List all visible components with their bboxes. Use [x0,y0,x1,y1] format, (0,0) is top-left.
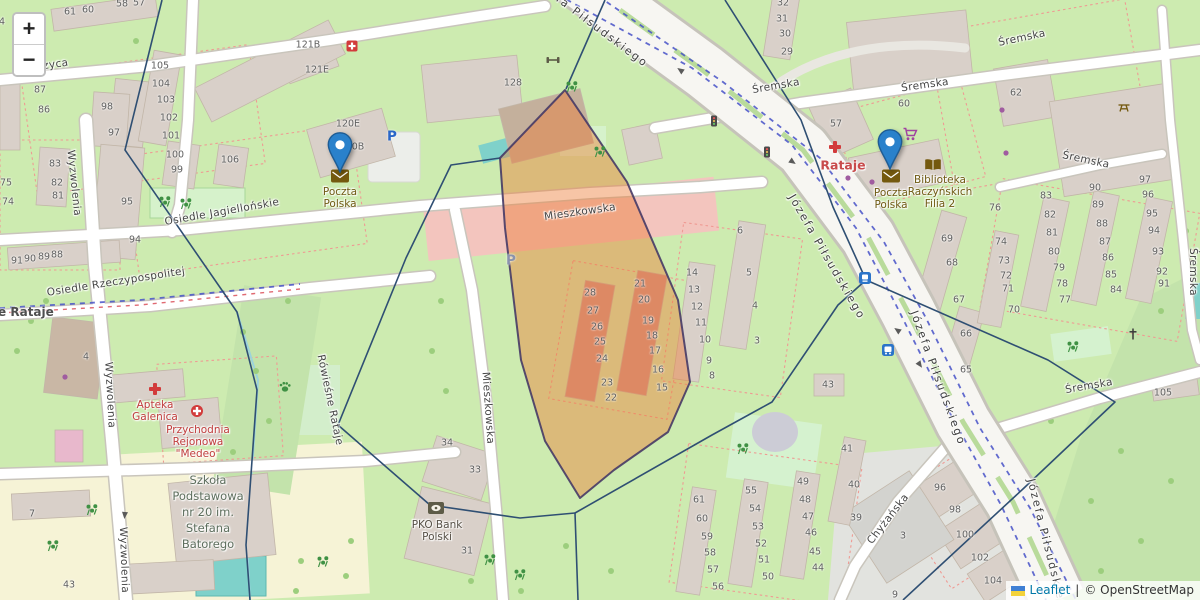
basemap-tiles [0,0,1200,600]
zoom-control: + − [12,12,46,77]
zoom-out-button[interactable]: − [14,45,44,75]
ukraine-flag-icon [1011,586,1025,596]
poczta-polska-marker-east[interactable] [878,129,903,170]
attribution-bar: Leaflet | © OpenStreetMap [1006,581,1200,600]
zoom-in-button[interactable]: + [14,14,44,45]
osm-copyright-link[interactable]: © OpenStreetMap [1084,581,1194,600]
map-canvas[interactable]: Józefa PiłsudskiegoJózefa PiłsudskiegoJó… [0,0,1200,600]
map-viewport: Józefa PiłsudskiegoJózefa PiłsudskiegoJó… [0,0,1200,600]
leaflet-link[interactable]: Leaflet [1029,581,1070,600]
poczta-polska-marker-west[interactable] [328,132,353,173]
attribution-separator: | [1075,581,1079,600]
